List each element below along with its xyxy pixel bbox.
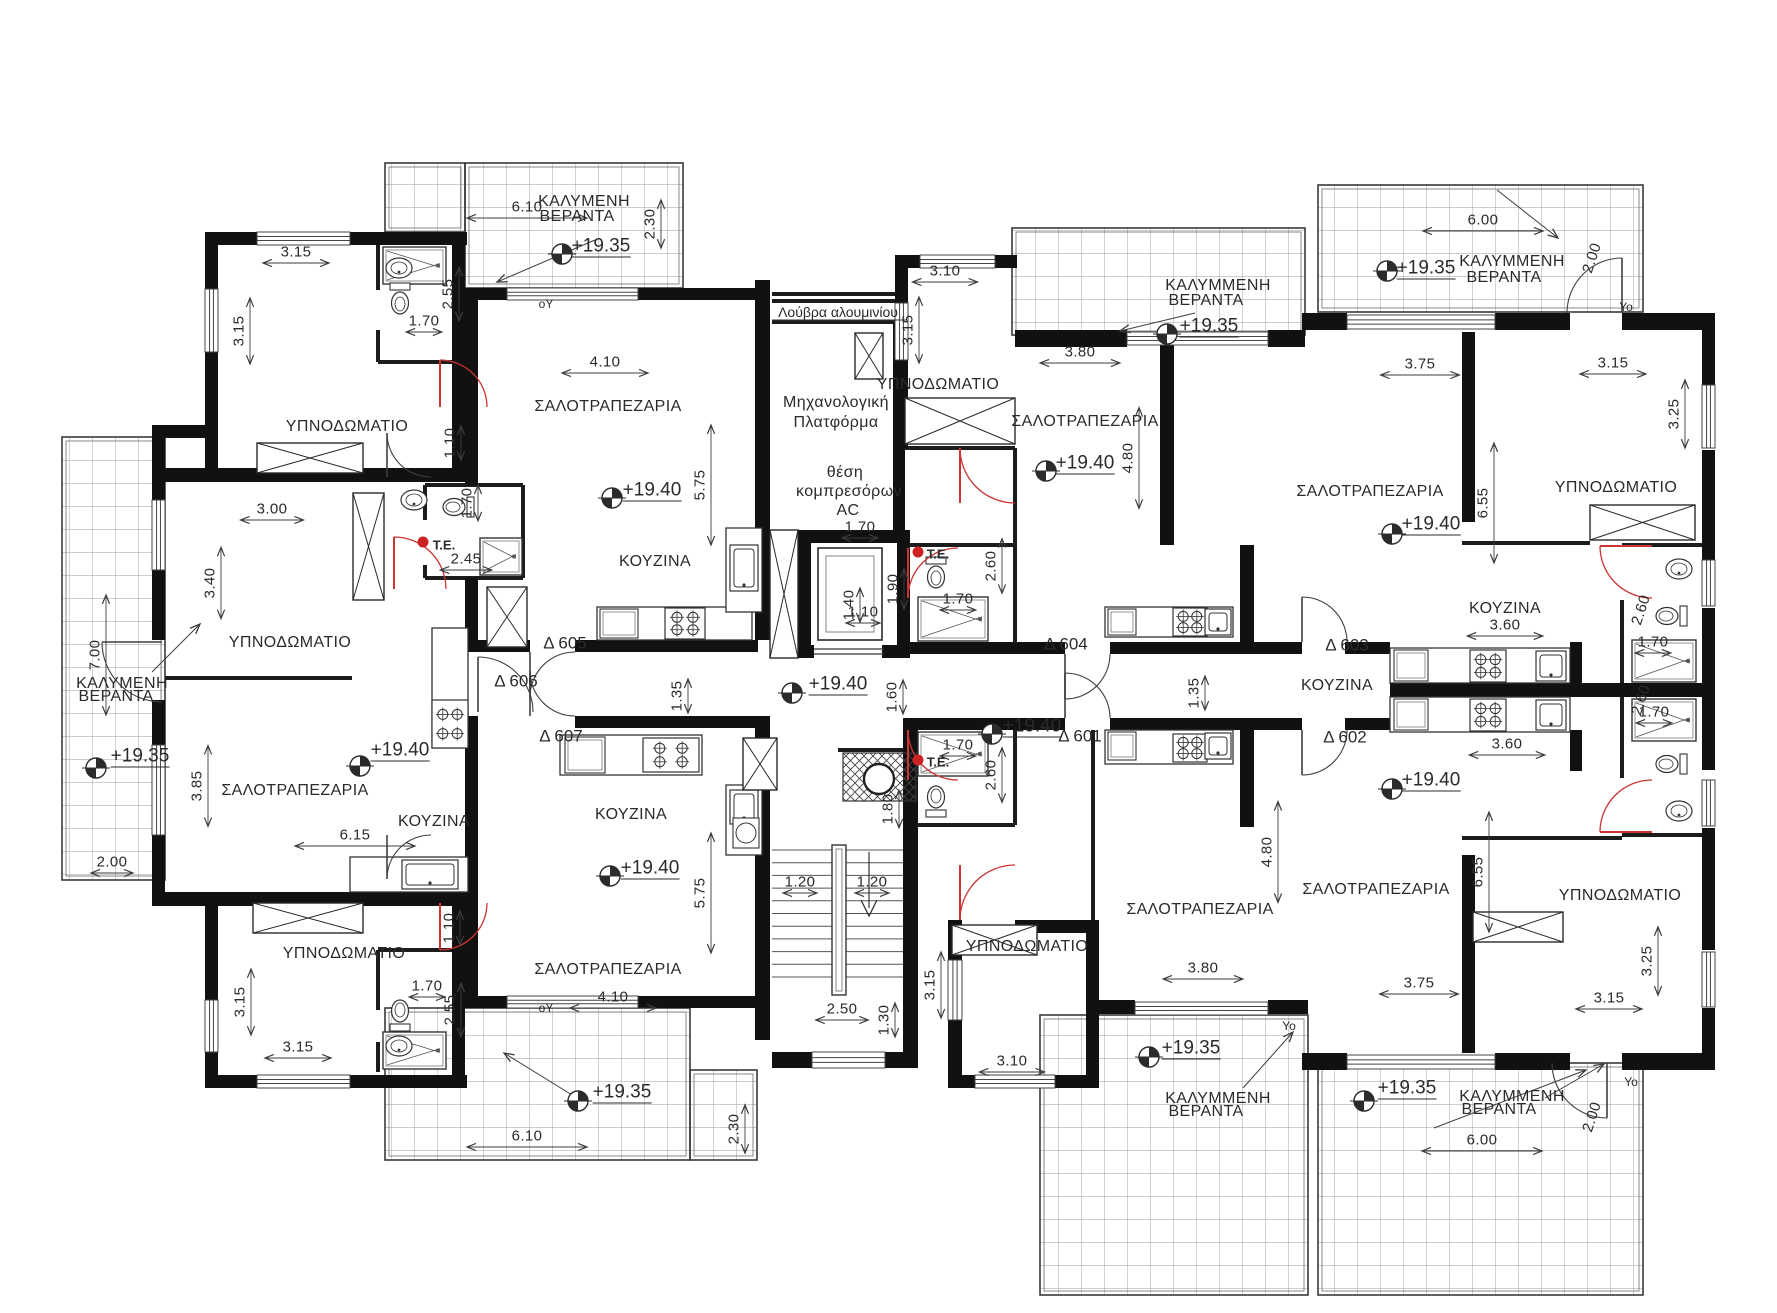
door-swing-red xyxy=(1600,780,1652,832)
wall xyxy=(1302,1053,1347,1070)
wall xyxy=(1622,1053,1715,1070)
te-dot xyxy=(418,537,429,548)
door-swing xyxy=(1065,654,1110,699)
wall xyxy=(910,642,1065,654)
wall xyxy=(452,232,465,468)
wall xyxy=(1240,545,1254,642)
wall xyxy=(205,352,218,468)
stove xyxy=(1470,650,1506,682)
level-marker-symbol xyxy=(1378,524,1406,544)
bathroom-sink xyxy=(401,490,427,510)
wall xyxy=(1462,855,1475,1053)
wall xyxy=(465,996,507,1008)
wall xyxy=(1390,683,1715,697)
wall xyxy=(1570,730,1582,771)
stove xyxy=(1470,699,1506,731)
wall xyxy=(995,255,1017,268)
wall xyxy=(1268,330,1305,347)
bathroom-sink xyxy=(1666,801,1692,821)
veranda-hatch xyxy=(62,437,165,880)
wall xyxy=(1015,330,1127,347)
elevator-cabin xyxy=(818,548,882,640)
bathroom-sink xyxy=(386,1036,412,1056)
wall xyxy=(205,245,218,289)
stove xyxy=(643,738,699,772)
veranda-hatch xyxy=(385,163,465,232)
veranda-hatch xyxy=(1012,228,1305,335)
wall xyxy=(205,1075,257,1088)
door-swing-red xyxy=(960,865,1015,920)
wall xyxy=(1622,313,1715,330)
wall xyxy=(638,288,758,300)
wall xyxy=(205,232,257,245)
te-dot xyxy=(913,547,924,558)
door-swing xyxy=(1065,673,1110,718)
wall xyxy=(885,1052,918,1068)
toilet xyxy=(926,557,946,588)
wall xyxy=(350,1075,467,1088)
level-marker-symbol xyxy=(778,683,806,703)
wall xyxy=(1110,718,1240,730)
wall xyxy=(1495,1053,1570,1070)
bathroom-sink xyxy=(1666,559,1692,579)
level-marker-symbol xyxy=(1032,461,1060,481)
toilet xyxy=(390,283,410,314)
level-marker-symbol xyxy=(346,756,374,776)
wall xyxy=(205,892,218,1000)
wall xyxy=(798,543,811,658)
door-swing xyxy=(1302,597,1347,642)
door-swing xyxy=(1302,730,1347,775)
wall xyxy=(895,255,920,268)
wall xyxy=(1462,332,1475,522)
toilet xyxy=(1656,606,1687,626)
wall xyxy=(1702,828,1715,950)
wall xyxy=(895,268,908,303)
stove xyxy=(1173,608,1207,636)
toilet xyxy=(443,497,474,517)
veranda-hatch xyxy=(1318,185,1643,312)
te-dot xyxy=(913,755,924,766)
wall xyxy=(1110,642,1240,654)
wc-symbol xyxy=(864,764,894,794)
wall xyxy=(465,288,478,485)
door-swing xyxy=(530,652,575,697)
stove xyxy=(665,608,705,639)
veranda-hatch xyxy=(1040,1015,1308,1295)
wall xyxy=(798,645,814,658)
toilet xyxy=(1656,754,1687,774)
door-swing-red xyxy=(1600,546,1652,598)
wall xyxy=(152,425,205,438)
stove xyxy=(1173,734,1207,762)
door-swing-red xyxy=(960,448,1015,503)
wall xyxy=(798,530,910,543)
wall xyxy=(1345,718,1390,730)
wall xyxy=(350,232,467,245)
wall xyxy=(1055,1075,1099,1088)
wall xyxy=(1345,642,1390,654)
plan-drawing xyxy=(0,0,1777,1313)
wall xyxy=(772,1052,812,1068)
wall xyxy=(1268,1000,1308,1014)
stair-stringer xyxy=(832,845,846,995)
wall xyxy=(1302,313,1347,330)
level-marker-symbol xyxy=(598,488,626,508)
toilet xyxy=(926,786,946,817)
wall xyxy=(1160,330,1174,545)
wall xyxy=(1702,450,1715,560)
level-marker-symbol xyxy=(1378,779,1406,799)
veranda-hatch xyxy=(465,163,683,288)
door-swing xyxy=(530,671,575,716)
bathroom-sink xyxy=(386,258,412,278)
toilet xyxy=(390,1000,410,1031)
wall xyxy=(575,640,758,652)
wall xyxy=(1240,718,1302,730)
wall xyxy=(755,612,770,640)
stove xyxy=(432,700,468,748)
level-marker-symbol xyxy=(596,866,624,886)
door-swing xyxy=(478,657,533,712)
wall xyxy=(1702,313,1715,385)
veranda-hatch xyxy=(690,1070,757,1160)
floor-plan: 3.153.151.702.55ΥΠΝΟΔΩΜΑΤΙΟ1.106.10ΚΑΛΥΜ… xyxy=(0,0,1777,1313)
wall xyxy=(638,996,758,1008)
wall xyxy=(452,892,465,1088)
wall xyxy=(882,645,910,658)
wall xyxy=(575,716,758,728)
wall xyxy=(1495,313,1570,330)
wall xyxy=(1240,642,1302,654)
wall xyxy=(948,1075,975,1088)
wall xyxy=(1570,642,1582,683)
wall xyxy=(1093,1000,1135,1014)
wall xyxy=(1240,730,1254,827)
